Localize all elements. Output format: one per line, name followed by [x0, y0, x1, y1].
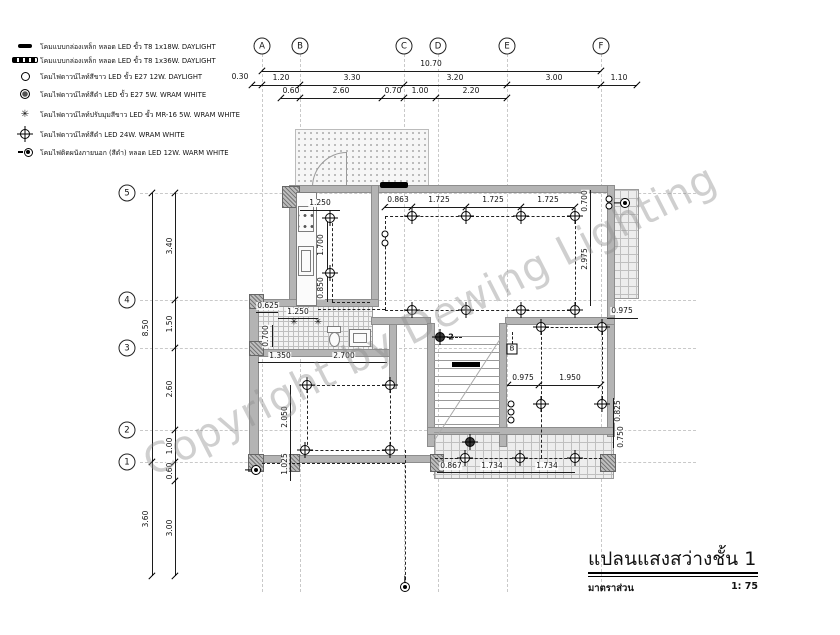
wall-lamp-icon [10, 148, 40, 157]
dim-label: 10.70 [419, 60, 442, 68]
title-rule-thin [588, 576, 758, 577]
dim-label: 1.734 [535, 462, 558, 470]
scale-value: 1: 75 [731, 581, 758, 596]
t8-batten-18w-icon [10, 44, 40, 48]
scale-label: มาตราส่วน [588, 581, 634, 596]
tick-mark [171, 572, 178, 579]
grid-label: E [504, 41, 509, 51]
grid-bubble-b: B [292, 38, 309, 55]
lighting-plan-drawing: A B C D E F 5 4 3 2 1 10.70 0.30 1.20 3.… [0, 0, 840, 635]
grid-bubble-e: E [499, 38, 516, 55]
legend-item: โคมไฟดาวน์ไลท์สีดำ LED 24W. WRAM WHITE [10, 128, 185, 140]
legend-item: โคมแบบกล่องเหล็ก หลอด LED ขั้ว T8 1x36W.… [10, 54, 216, 66]
downlight-symbol [570, 453, 580, 463]
dim-label: 0.30 [231, 73, 250, 81]
drawing-title: แปลนแสงสว่างชั้น 1 [588, 549, 758, 570]
dim-label: 1.00 [411, 87, 430, 95]
grid-bubble-c: C [396, 38, 413, 55]
grid-label: B [297, 41, 303, 51]
legend-item: โคมไฟดาวน์ไลท์สีดำ LED ขั้ว E27 5W. WRAM… [10, 88, 206, 100]
title-block: แปลนแสงสว่างชั้น 1 มาตราส่วน 1: 75 [588, 549, 758, 596]
dim-label: 3.60 [142, 510, 150, 529]
dim-label: 0.70 [384, 87, 403, 95]
t8-batten-36w-icon [10, 57, 40, 63]
legend-item: โคมแบบกล่องเหล็ก หลอด LED ขั้ว T8 1x18W.… [10, 40, 216, 52]
legend-item-label: โคมไฟดาวน์ไลท์สีขาว LED ขั้ว E27 12W. DA… [40, 71, 202, 82]
grid-label: 2 [124, 425, 129, 435]
downlight-black-icon [10, 89, 40, 99]
dim-label: 3.30 [343, 74, 362, 82]
legend-item: โคมไฟติดผนังภายนอก (สีดำ) หลอด LED 12W. … [10, 146, 229, 158]
dim-line [281, 98, 507, 99]
mr16-spotlight-icon: ✳ [10, 109, 40, 120]
legend-item-label: โคมไฟติดผนังภายนอก (สีดำ) หลอด LED 12W. … [40, 147, 229, 158]
grid-label: A [259, 41, 265, 51]
dim-label: 2.20 [462, 87, 481, 95]
dim-label: 3.00 [166, 519, 174, 538]
dim-label: 3.40 [166, 237, 174, 256]
tick-mark [148, 572, 155, 579]
grid-label: 5 [124, 188, 129, 198]
legend-item-label: โคมไฟดาวน์ไลท์สีดำ LED ขั้ว E27 5W. WRAM… [40, 89, 206, 100]
dim-label: 3.20 [446, 74, 465, 82]
grid-label: D [435, 41, 442, 51]
legend-item: โคมไฟดาวน์ไลท์สีขาว LED ขั้ว E27 12W. DA… [10, 70, 202, 82]
dim-label: 1.20 [272, 74, 291, 82]
wall-lamp-symbol [400, 582, 410, 592]
grid-label: 1 [124, 457, 129, 467]
grid-bubble-1: 1 [119, 454, 136, 471]
dim-label: 0.750 [617, 425, 625, 448]
legend-item-label: โคมแบบกล่องเหล็ก หลอด LED ขั้ว T8 1x36W.… [40, 55, 216, 66]
dim-label: 2.60 [332, 87, 351, 95]
downlight-white-icon [10, 72, 40, 81]
column [600, 454, 616, 472]
grid-bubble-d: D [430, 38, 447, 55]
grid-bubble-5: 5 [119, 185, 136, 202]
grid-label: C [401, 41, 407, 51]
title-rule-thick [588, 572, 758, 575]
legend-item-label: โคมแบบกล่องเหล็ก หลอด LED ขั้ว T8 1x18W.… [40, 41, 216, 52]
legend-item-label: โคมไฟดาวน์ไลท์สีดำ LED 24W. WRAM WHITE [40, 129, 185, 140]
legend-item-label: โคมไฟดาวน์ไลท์ปรับมุมสีขาว LED ขั้ว MR-1… [40, 109, 240, 120]
legend-item: ✳ โคมไฟดาวน์ไลท์ปรับมุมสีขาว LED ขั้ว MR… [10, 108, 240, 120]
downlight-24w-icon [10, 129, 40, 139]
grid-bubble-a: A [254, 38, 271, 55]
